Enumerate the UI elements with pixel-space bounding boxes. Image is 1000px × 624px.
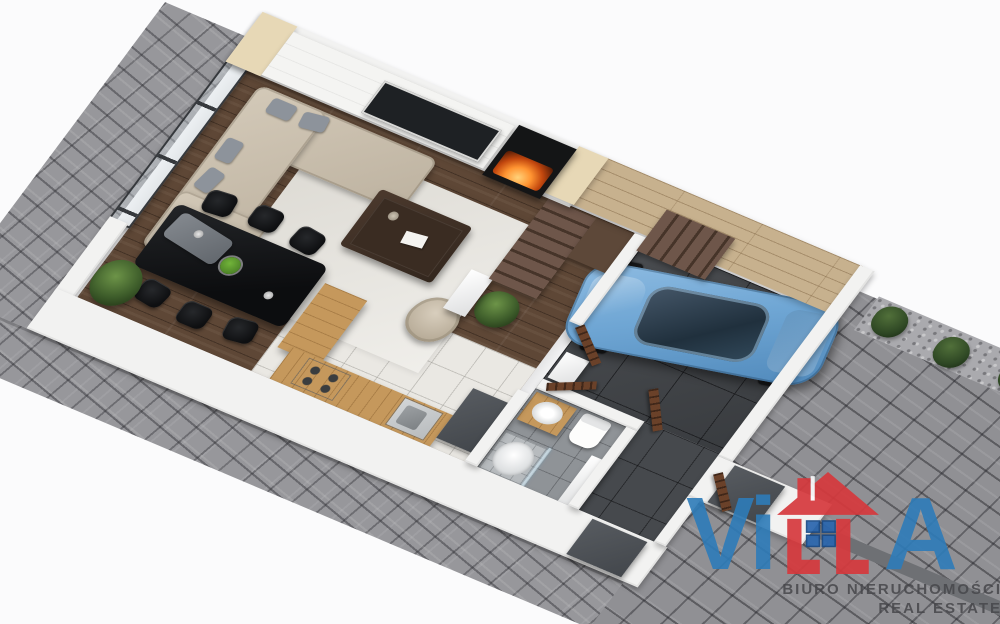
brand-letter-a: A — [883, 492, 953, 576]
brand-logo-row: Vi LL A — [686, 466, 1000, 576]
wooden-door — [546, 381, 597, 391]
brand-letters-vi: Vi — [686, 492, 773, 576]
watermark-logo: Vi LL A BIURO NIERUCHOMOŚCI — [686, 466, 1000, 617]
brand-subtitle-line1: BIURO NIERUCHOMOŚCI — [686, 581, 1000, 598]
villa-house-logo-icon: LL — [776, 470, 880, 576]
brand-subtitle-line2: REAL ESTATE — [686, 600, 1000, 617]
brand-subtitle: BIURO NIERUCHOMOŚCI REAL ESTATE — [686, 581, 1000, 617]
floorplan-render-scene: Vi LL A BIURO NIERUCHOMOŚCI — [0, 0, 1000, 624]
